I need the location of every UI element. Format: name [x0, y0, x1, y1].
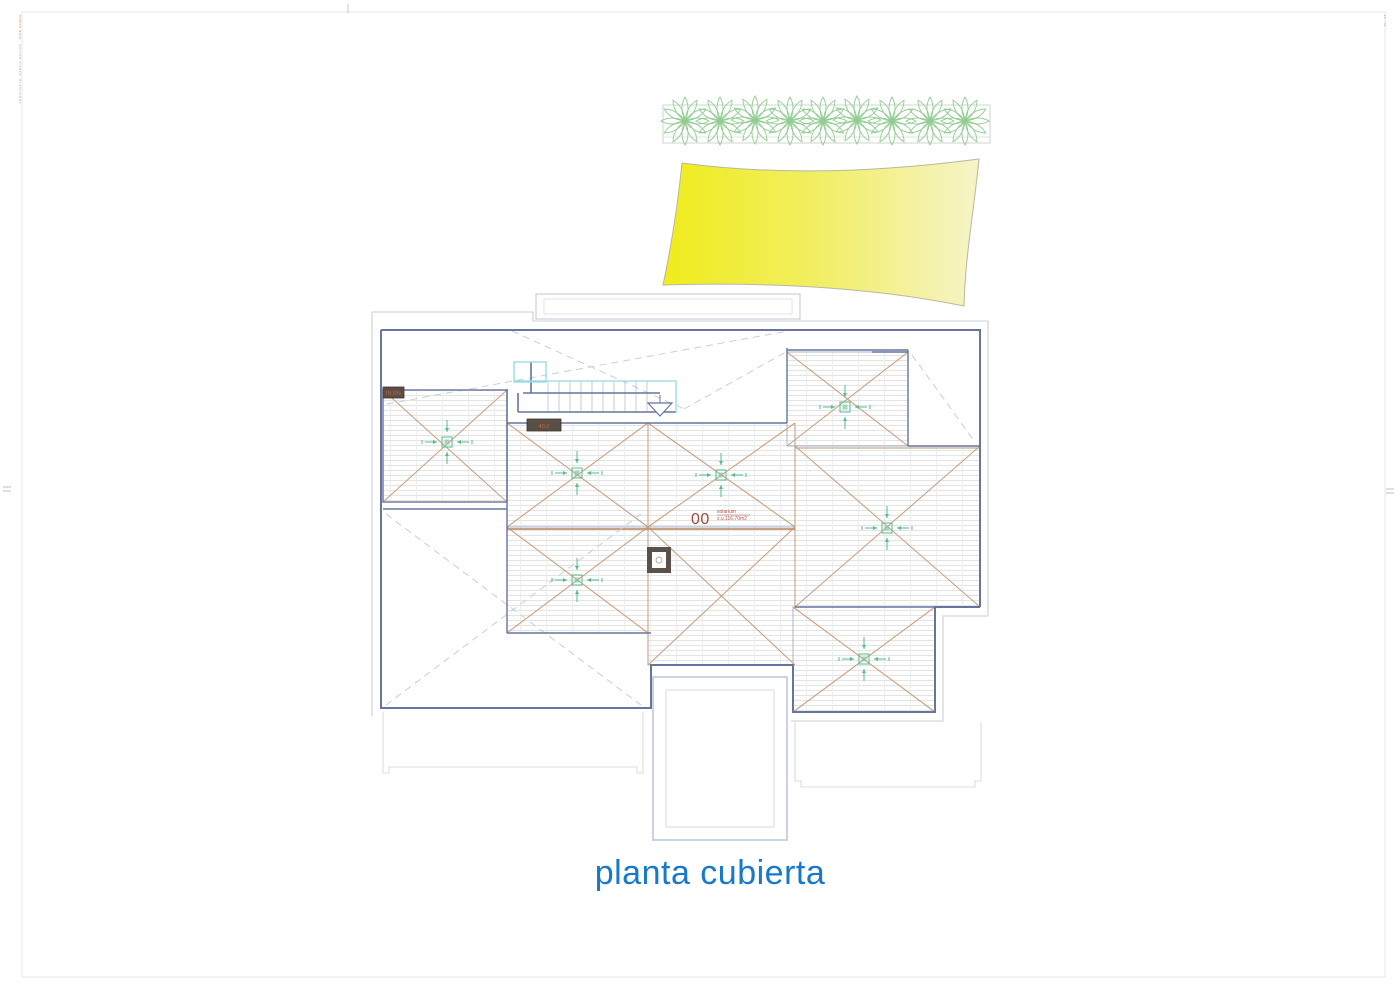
- room-area: s.u.116.70m2: [717, 516, 747, 522]
- slope-label-a: IN.5%: [383, 387, 404, 398]
- edge-text-left-2: GARCIA MOLINA: [18, 44, 22, 75]
- stairwell: [514, 362, 676, 416]
- planter-plants: [661, 96, 989, 145]
- upper-parapet-band: [536, 294, 800, 319]
- roof-plan-drawing: IN.5% 40.2 00 solarium s.u.116.70m2: [0, 0, 1400, 989]
- roof-hatched-panels: [383, 352, 980, 712]
- svg-text:40.2: 40.2: [539, 424, 550, 430]
- edge-text-right-1: PL. 05: [1383, 14, 1387, 26]
- drawing-sheet: IN.5% 40.2 00 solarium s.u.116.70m2 JOSE…: [0, 0, 1400, 989]
- svg-text:IN.5%: IN.5%: [386, 391, 401, 397]
- edge-text-left-1: JOSE RAMON: [18, 14, 22, 40]
- slope-label-b: 40.2: [527, 419, 561, 431]
- shade-sail: [663, 159, 979, 306]
- room-number: 00: [691, 511, 710, 528]
- drawing-title: planta cubierta: [555, 854, 865, 893]
- chimney: [647, 547, 671, 573]
- edge-text-left-3: ARQUITECTO: [18, 78, 22, 104]
- room-name: solarium: [717, 509, 736, 515]
- stair-direction-arrow: [648, 403, 672, 416]
